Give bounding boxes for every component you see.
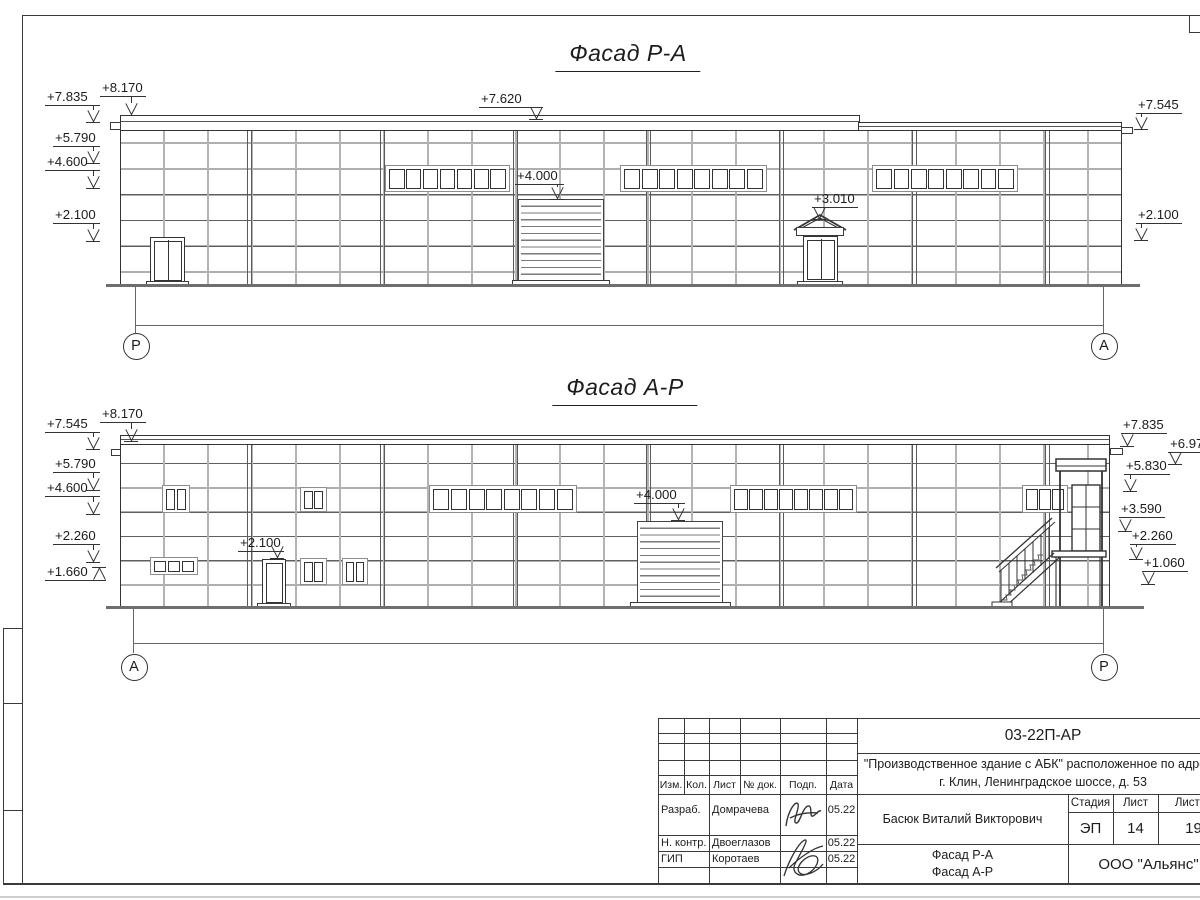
elevation-value: +3.010: [812, 192, 858, 206]
titleblock-line: [658, 743, 857, 744]
window-pane: [314, 491, 322, 509]
elevation-arrow-icon: [1168, 452, 1182, 465]
facade-title-bottom: Фасад А-Р: [552, 374, 697, 406]
elevation-arrow-icon: [1123, 479, 1137, 492]
rev-header-podp: Подп.: [780, 775, 826, 794]
company-name: ООО "Альянс": [1068, 844, 1200, 884]
elevation-arrow-icon: [1141, 572, 1155, 585]
window-pane: [557, 489, 573, 510]
responsible-person: Басюк Виталий Викторович: [857, 794, 1068, 844]
window-pane: [168, 561, 180, 572]
axis-connector: [135, 325, 1103, 326]
elevation-leader-line: [1136, 544, 1137, 547]
window-pane: [729, 169, 745, 189]
elevation-mark: +4.600: [45, 155, 100, 171]
window-pane: [314, 562, 322, 582]
elevation-arrow-icon: [86, 229, 100, 242]
elevation-arrow-icon: [86, 437, 100, 450]
signature-scribble: [779, 836, 826, 882]
elevation-leader-line: [678, 503, 679, 508]
elevation-leader-line: [93, 544, 94, 550]
elevation-leader-line: [93, 170, 94, 176]
elevation-arrow-icon: [529, 107, 543, 120]
window-pane: [474, 169, 489, 189]
window-pane: [809, 489, 822, 510]
sheets-label: Листов: [1158, 794, 1200, 812]
window-pane: [624, 169, 640, 189]
elevation-value: +6.97: [1168, 437, 1200, 451]
rev-header-ndok: № док.: [740, 775, 780, 794]
roof-pipe: [110, 122, 121, 130]
axis-connector: [133, 643, 1103, 644]
roller-gate: [637, 521, 723, 607]
elevation-mark: +4.000: [515, 169, 564, 185]
window-pane: [928, 169, 944, 189]
window-pane: [659, 169, 675, 189]
elevation-value: +7.545: [1136, 98, 1182, 112]
titleblock-line: [658, 867, 857, 868]
window-pane: [749, 489, 762, 510]
elevation-arrow-icon: [124, 429, 138, 442]
window-pane: [406, 169, 421, 189]
frame-corner-box: [1189, 15, 1200, 33]
axis-bubble: А: [1091, 333, 1118, 360]
pediment-cornice: [796, 227, 844, 236]
sheet-bottom-edge: [0, 896, 1200, 898]
window-band: [429, 485, 577, 513]
titleblock-line: [658, 760, 857, 761]
elevation-value: +7.835: [1121, 418, 1167, 432]
elevation-value: +4.600: [45, 155, 91, 169]
window-pane: [486, 489, 502, 510]
elevation-mark: +4.600: [45, 481, 100, 497]
elevation-mark: +8.170: [100, 81, 146, 97]
axis-bubble: Р: [1091, 654, 1118, 681]
elevation-mark: +7.545: [45, 417, 100, 433]
drawing-sheet: Фасад Р-А Фасад А-Р: [0, 0, 1200, 900]
window-pane: [911, 169, 927, 189]
window-pane: [440, 169, 455, 189]
window-pane: [876, 169, 892, 189]
window-pane: [764, 489, 777, 510]
elevation-leader-line: [131, 422, 132, 429]
side-door: [262, 559, 286, 606]
ground-line-top: [106, 284, 1140, 287]
elevation-mark: +3.590: [1119, 502, 1165, 518]
facade-wall-top: [120, 130, 1122, 286]
window: [162, 485, 190, 513]
window-pane: [734, 489, 747, 510]
window-pane: [981, 169, 997, 189]
elevation-value: +5.830: [1124, 459, 1170, 473]
window: [300, 487, 327, 512]
window-pane: [824, 489, 837, 510]
window-pane: [304, 562, 312, 582]
elevation-value: +2.100: [53, 208, 99, 222]
elevation-value: +4.000: [515, 169, 561, 183]
window: [300, 558, 327, 585]
elevation-arrow-icon: [86, 176, 100, 189]
elevation-leader-line: [93, 496, 94, 502]
window-pane: [539, 489, 555, 510]
window-band: [385, 165, 510, 192]
axis-line: [1103, 609, 1104, 653]
elevation-value: +1.060: [1142, 556, 1188, 570]
sig-role-1: Н. контр.: [658, 835, 709, 851]
elevation-value: +7.545: [45, 417, 91, 431]
window-pane: [839, 489, 852, 510]
elevation-leader-line: [557, 184, 558, 187]
elevation-arrow-icon: [86, 550, 100, 563]
elevation-arrow-icon: [671, 508, 685, 521]
sig-name-1: Двоеглазов: [709, 835, 780, 851]
drawing-caption-line2: Фасад А-Р: [857, 864, 1068, 881]
sheets-value: 19: [1158, 812, 1200, 844]
project-address-line2: г. Клин, Ленинградское шоссе, д. 53: [857, 773, 1200, 791]
sheet-label: Лист: [1113, 794, 1158, 812]
window-pane: [166, 489, 175, 510]
elevation-mark: +5.830: [1124, 459, 1170, 475]
elevation-value: +8.170: [100, 407, 146, 421]
elevation-mark: +7.620: [479, 92, 543, 108]
window-strip: [150, 557, 198, 575]
elevation-arrow-icon: [92, 567, 106, 580]
window-pane: [154, 561, 166, 572]
elevation-leader-line: [93, 146, 94, 151]
window-band: [730, 485, 857, 513]
elevation-value: +2.260: [1130, 529, 1176, 543]
stage-label: Стадия: [1068, 794, 1113, 812]
elevation-value: +2.100: [1136, 208, 1182, 222]
window-pane: [694, 169, 710, 189]
window-pane: [423, 169, 438, 189]
window: [342, 558, 368, 585]
project-address: "Производственное здание с АБК" располож…: [857, 755, 1200, 794]
window-pane: [451, 489, 467, 510]
stage-value: ЭП: [1068, 812, 1113, 844]
sig-name-2: Коротаев: [709, 851, 780, 867]
frame-cell-divider: [3, 628, 22, 629]
elevation-value: +4.000: [634, 488, 680, 502]
window-pane: [490, 169, 505, 189]
axis-line: [1103, 287, 1104, 333]
elevation-mark: +2.100: [238, 536, 284, 552]
window-pane: [963, 169, 979, 189]
elevation-mark: +5.790: [53, 131, 100, 147]
elevation-leader-line: [1141, 113, 1142, 117]
elevation-arrow-icon: [86, 502, 100, 515]
frame-outer-left-line: [3, 628, 4, 884]
elevation-value: +8.170: [100, 81, 146, 95]
sig-date-2: 05.22: [826, 851, 857, 867]
sheet-value: 14: [1113, 812, 1158, 844]
window-pane: [433, 489, 449, 510]
elevation-leader-line: [93, 472, 94, 478]
rev-header-data: Дата: [826, 775, 857, 794]
elevation-arrow-icon: [270, 546, 284, 559]
drawing-caption-line1: Фасад Р-А: [857, 847, 1068, 864]
window-pane: [182, 561, 194, 572]
elevation-arrow-icon: [812, 207, 826, 220]
rev-header-kol: Кол.: [684, 775, 709, 794]
elevation-mark: +7.835: [45, 90, 100, 106]
elevation-mark: +2.260: [53, 529, 100, 545]
signature-scribble: [782, 796, 824, 834]
elevation-value: +5.790: [53, 131, 99, 145]
sig-name-0: Домрачева: [709, 800, 780, 820]
elevation-value: +3.590: [1119, 502, 1165, 516]
window-pane: [389, 169, 404, 189]
elevation-mark: +1.660: [45, 565, 106, 581]
elevation-value: +7.620: [479, 92, 525, 106]
frame-left-line: [22, 15, 23, 884]
pediment-door: [803, 236, 838, 283]
frame-top-line: [22, 15, 1200, 16]
window-pane: [356, 562, 364, 582]
elevation-leader-line: [1130, 474, 1131, 479]
elevation-mark: +4.000: [634, 488, 685, 504]
window-pane: [794, 489, 807, 510]
elevation-value: +5.790: [53, 457, 99, 471]
window-pane: [504, 489, 520, 510]
elevation-mark: +5.790: [53, 457, 100, 473]
titleblock-line: [857, 753, 1200, 754]
elevation-arrow-icon: [1134, 117, 1148, 130]
elevation-leader-line: [131, 96, 132, 103]
elevation-arrow-icon: [550, 187, 564, 200]
titleblock-line: [658, 733, 857, 734]
elevation-mark: +2.260: [1130, 529, 1176, 545]
ground-line-bottom: [106, 606, 1144, 609]
frame-cell-divider: [3, 703, 22, 704]
sig-date-0: 05.22: [826, 800, 857, 820]
axis-line: [135, 287, 136, 333]
roof-pipe: [1121, 127, 1133, 134]
window-pane: [946, 169, 962, 189]
window-pane: [457, 169, 472, 189]
window-pane: [469, 489, 485, 510]
window-band: [620, 165, 767, 192]
parapet-band-top: [120, 115, 860, 131]
doc-number: 03-22П-АР: [857, 718, 1200, 753]
elevation-arrow-icon: [1134, 228, 1148, 241]
window-pane: [894, 169, 910, 189]
axis-bubble: Р: [123, 333, 150, 360]
window-pane: [747, 169, 763, 189]
window-band: [872, 165, 1018, 192]
elevation-mark: +8.170: [100, 407, 146, 423]
entrance-door: [150, 237, 185, 284]
elevation-arrow-icon: [1129, 547, 1143, 560]
project-address-line1: "Производственное здание с АБК" располож…: [857, 755, 1200, 773]
rev-header-izm: Изм.: [658, 775, 684, 794]
elevation-value: +2.260: [53, 529, 99, 543]
sig-date-1: 05.22: [826, 835, 857, 851]
window-pane: [677, 169, 693, 189]
elevation-arrow-icon: [86, 110, 100, 123]
roller-gate: [518, 199, 604, 284]
window-pane: [642, 169, 658, 189]
elevation-mark: +3.010: [812, 192, 858, 208]
elevation-arrow-icon: [1120, 434, 1134, 447]
window-pane: [712, 169, 728, 189]
window-pane: [346, 562, 354, 582]
elevation-leader-line: [93, 432, 94, 437]
elevation-mark: +7.835: [1121, 418, 1167, 434]
elevation-mark: +6.97: [1168, 437, 1200, 453]
frame-cell-divider: [3, 810, 22, 811]
window-pane: [521, 489, 537, 510]
elevation-leader-line: [1141, 223, 1142, 228]
elevation-mark: +2.100: [1136, 208, 1182, 224]
window-pane: [998, 169, 1014, 189]
elevation-value: +7.835: [45, 90, 91, 104]
elevation-arrow-icon: [124, 103, 138, 116]
elevation-leader-line: [93, 105, 94, 110]
facade-title-top: Фасад Р-А: [555, 40, 700, 72]
axis-line: [133, 609, 134, 653]
elevation-mark: +2.100: [53, 208, 100, 224]
elevation-mark: +7.545: [1136, 98, 1182, 114]
window-pane: [177, 489, 186, 510]
sig-role-0: Разраб.: [658, 800, 709, 820]
axis-bubble: А: [121, 654, 148, 681]
rev-header-list: Лист: [709, 775, 740, 794]
drawing-caption: Фасад Р-А Фасад А-Р: [857, 844, 1068, 884]
elevation-value: +1.660: [45, 565, 91, 579]
elevation-mark: +1.060: [1142, 556, 1188, 572]
elevation-value: +4.600: [45, 481, 91, 495]
window-pane: [779, 489, 792, 510]
elevation-leader-line: [93, 223, 94, 229]
sig-role-2: ГИП: [658, 851, 709, 867]
window-pane: [304, 491, 312, 509]
